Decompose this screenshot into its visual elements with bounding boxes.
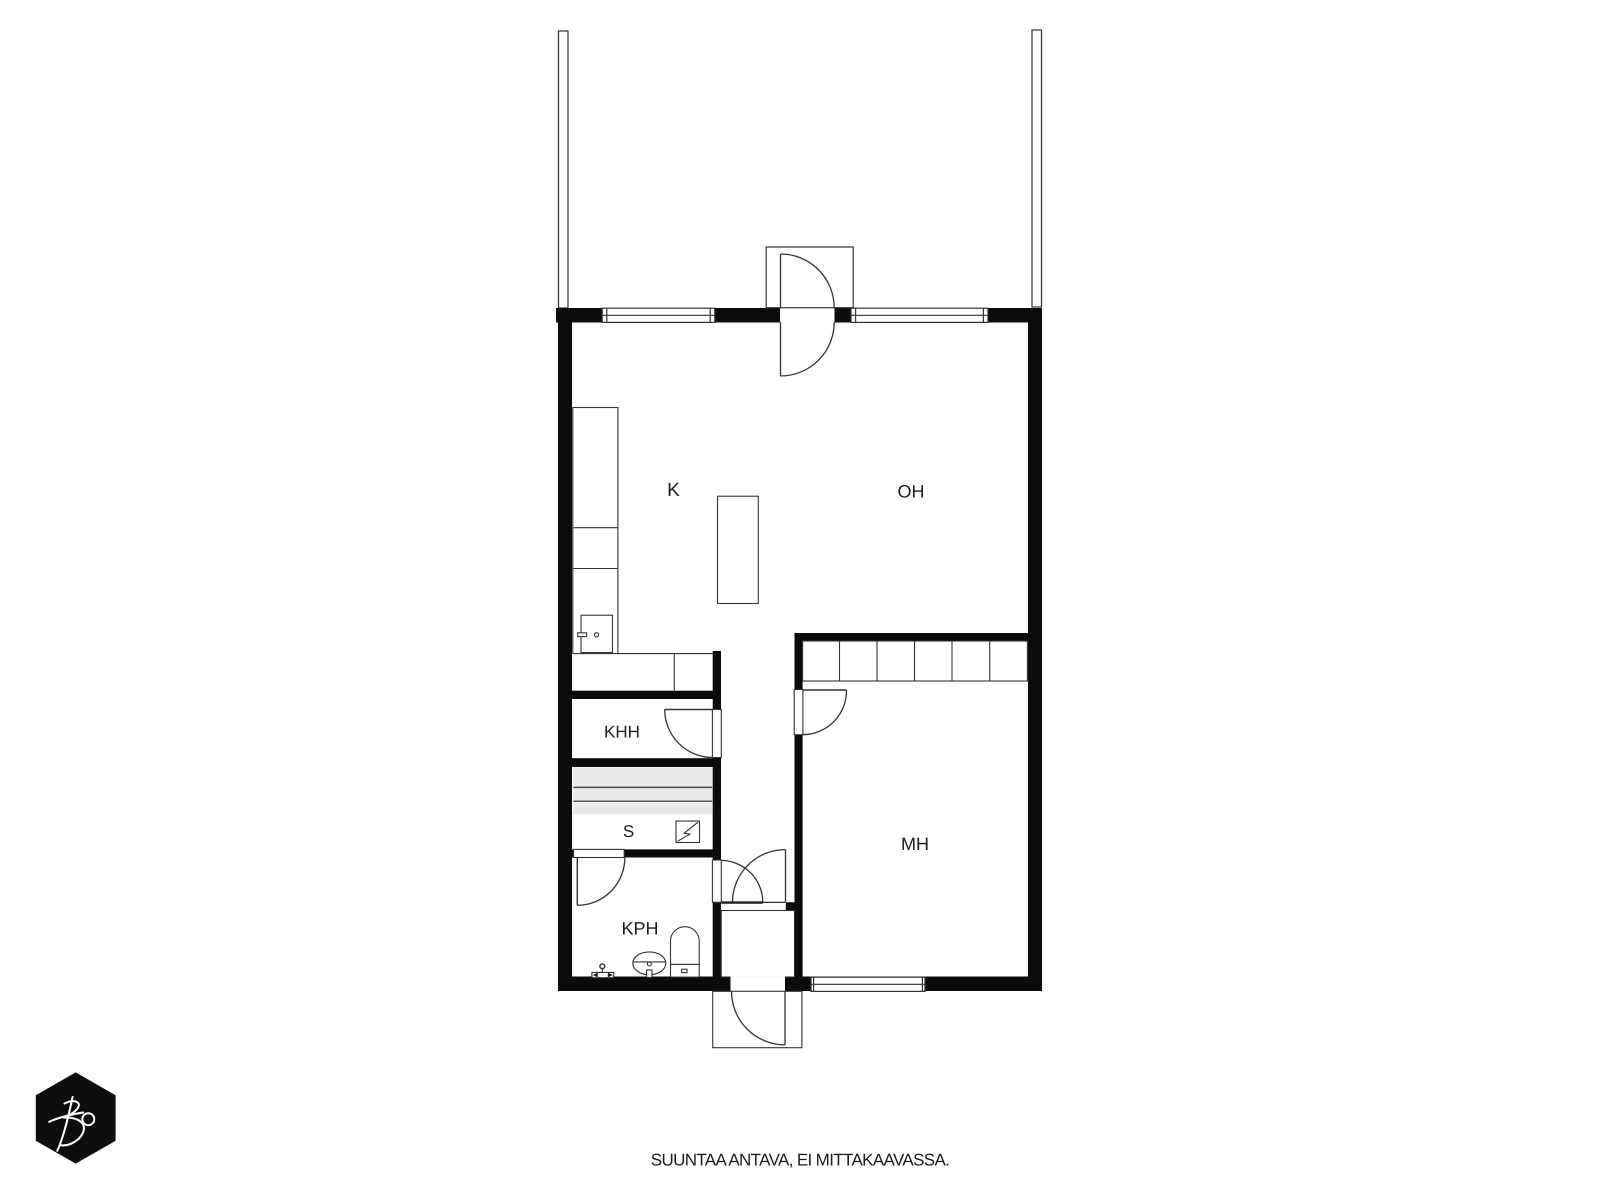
svg-text:K: K <box>667 480 680 501</box>
svg-text:KPH: KPH <box>621 919 658 939</box>
svg-text:S: S <box>623 822 634 841</box>
svg-text:OH: OH <box>898 482 925 502</box>
svg-text:SUUNTAA ANTAVA, EI MITTAKAAVAS: SUUNTAA ANTAVA, EI MITTAKAAVASSA. <box>651 1150 949 1169</box>
svg-text:KHH: KHH <box>604 723 640 742</box>
svg-text:MH: MH <box>901 834 929 854</box>
